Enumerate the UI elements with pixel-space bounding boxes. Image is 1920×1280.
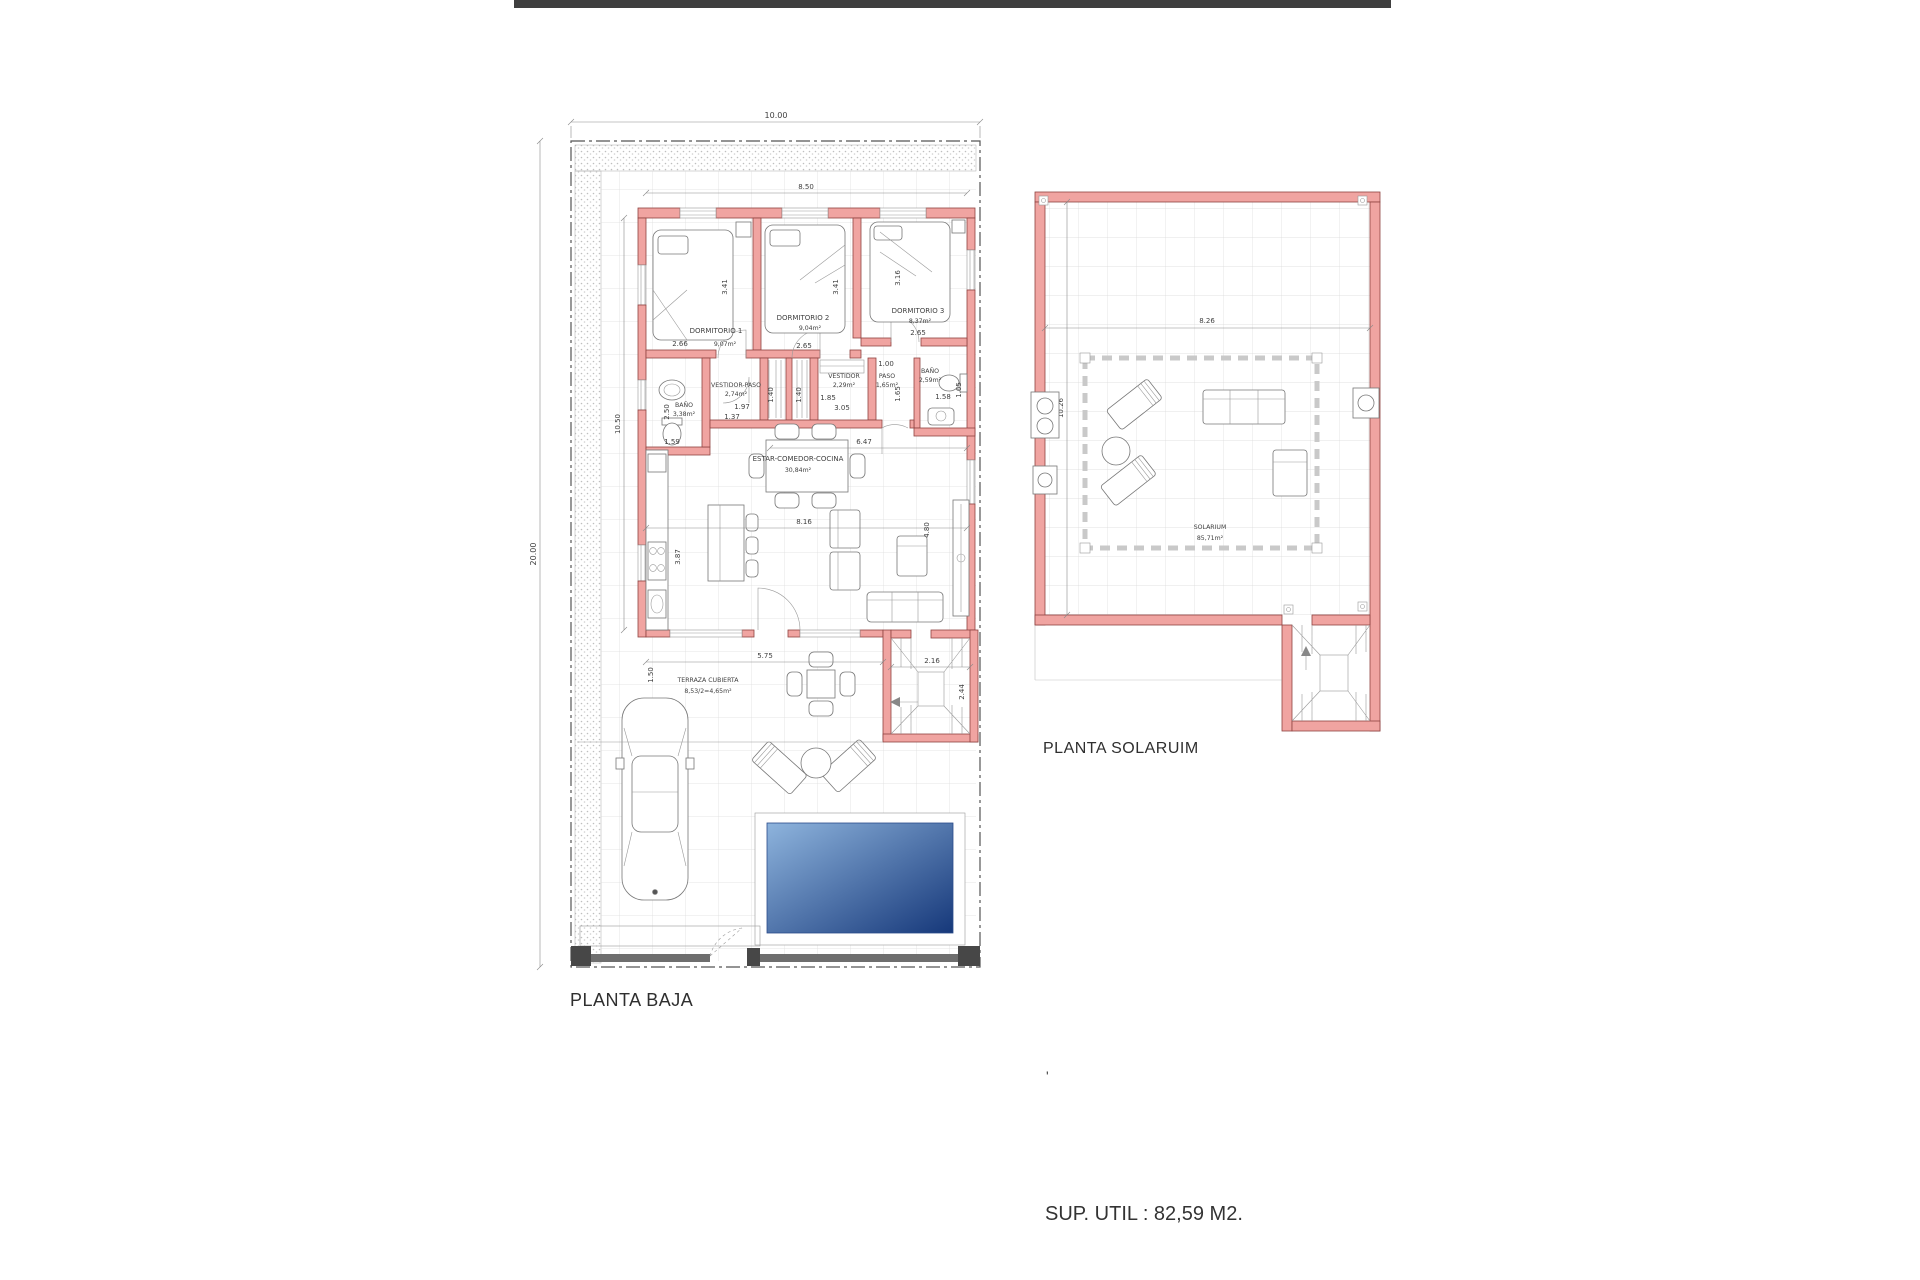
living-w-mid: 8.16 xyxy=(796,518,812,526)
stairs xyxy=(1292,625,1370,721)
dorm2-name: DORMITORIO 2 xyxy=(777,314,830,322)
bano1-w: 1.59 xyxy=(664,438,680,446)
paso-name: PASO xyxy=(879,373,895,380)
bano2-area: 2,59m² xyxy=(919,377,942,384)
living-area: 30,84m² xyxy=(785,467,812,474)
dorm2-width: 2.65 xyxy=(796,342,812,350)
terraza-h: 1.50 xyxy=(647,667,655,683)
dorm3-height: 3.16 xyxy=(894,270,902,286)
paso-w: 1.00 xyxy=(878,360,894,368)
drawing-sheet: 10.00 20.00 8.50 10.50 xyxy=(0,0,1920,1280)
note-mark: ' xyxy=(1046,1068,1049,1084)
vestidor-paso-w2: 1.37 xyxy=(724,413,740,421)
armchair-icon xyxy=(830,552,860,590)
kitchen-counter xyxy=(646,450,668,630)
car-icon xyxy=(616,698,694,900)
dorm2-area: 9,04m² xyxy=(799,325,822,332)
garden-table-icon xyxy=(1102,437,1130,465)
vestidor-name: VESTIDOR xyxy=(828,373,860,380)
vestidor-paso-area: 2,74m² xyxy=(725,391,748,398)
living-name: ESTAR-COMEDOR-COCINA xyxy=(753,455,844,463)
closet-left-dim: 1.40 xyxy=(767,387,775,403)
plot-height-dim: 20.00 xyxy=(529,543,538,566)
plot-width-dim: 10.00 xyxy=(765,111,788,120)
vestidor-area: 2,29m² xyxy=(833,382,856,389)
planta-baja-title: PLANTA BAJA xyxy=(570,990,693,1011)
armchair-icon xyxy=(897,536,927,576)
planta-solarium-drawing: 8.26 10.26 SOLARIUM 85,71m² xyxy=(1020,150,1420,770)
armchair-icon xyxy=(1273,450,1307,496)
planter-icon xyxy=(1033,466,1057,494)
dorm1-width: 2.66 xyxy=(672,340,688,348)
tv-unit-icon xyxy=(953,500,969,616)
living-h-right: 4.80 xyxy=(923,522,931,538)
top-bar xyxy=(514,0,1391,8)
stairs-h: 2.44 xyxy=(958,684,966,700)
solarium-name: SOLARIUM xyxy=(1194,524,1227,531)
gravel-band-top xyxy=(575,145,976,171)
bano2-name: BAÑO xyxy=(921,366,939,375)
gravel-band-left xyxy=(575,171,601,963)
living-h-left: 3.87 xyxy=(674,549,682,565)
bano1-h: 2.50 xyxy=(663,404,671,420)
vestidor-paso-w: 1.97 xyxy=(734,403,750,411)
house-width-dim: 8.50 xyxy=(798,183,814,191)
bano2-w: 1.58 xyxy=(935,393,951,401)
surface-summary: SUP. UTIL : 82,59 M2. SUP. CONSTRUIDA: 9… xyxy=(1045,1122,1387,1280)
planter-icon xyxy=(1353,388,1379,418)
vestidor-w: 1.85 xyxy=(820,394,836,402)
bano1-name: BAÑO xyxy=(675,400,693,409)
closet-right-dim: 1.40 xyxy=(795,387,803,403)
dorm2-height: 3.41 xyxy=(832,279,840,295)
sink-icon xyxy=(659,380,685,400)
dorm1-name: DORMITORIO 1 xyxy=(690,327,743,335)
dorm3-name: DORMITORIO 3 xyxy=(892,307,945,315)
planter-icon xyxy=(1031,392,1059,438)
solarium-area: 85,71m² xyxy=(1197,535,1224,542)
dorm3-width: 2.65 xyxy=(910,329,926,337)
dorm1-area: 9,07m² xyxy=(714,341,737,348)
bano2-h: 1.65 xyxy=(955,382,963,398)
vestidor-paso-name: VESTIDOR-PASO xyxy=(711,382,761,389)
pool xyxy=(755,813,965,945)
living-w-top: 6.47 xyxy=(856,438,872,446)
house-left-height-dim: 10.50 xyxy=(614,414,622,434)
planta-baja-drawing: 10.00 20.00 8.50 10.50 xyxy=(520,90,1000,1020)
terraza-area: 8,53/2=4,65m² xyxy=(684,688,732,695)
paso-h: 1.65 xyxy=(894,386,902,402)
dorm3-area: 8,37m² xyxy=(909,318,932,325)
sink-icon xyxy=(928,408,954,425)
sofa-icon xyxy=(867,592,943,622)
kitchen-island xyxy=(708,505,758,581)
garden-table-icon xyxy=(801,748,831,778)
sofa-icon xyxy=(1203,390,1285,424)
terraza-name: TERRAZA CUBIERTA xyxy=(677,677,740,684)
dorm1-height: 3.41 xyxy=(721,279,729,295)
vestidor-w2: 3.05 xyxy=(834,404,850,412)
stairs-w: 2.16 xyxy=(924,657,940,665)
solarium-width-dim: 8.26 xyxy=(1199,317,1215,325)
roof-edge-line xyxy=(1035,625,1282,680)
bano1-area: 3,38m² xyxy=(673,411,696,418)
planta-solarium-title: PLANTA SOLARUIM xyxy=(1043,740,1199,758)
terraza-w: 5.75 xyxy=(757,652,773,660)
armchair-icon xyxy=(830,510,860,548)
wardrobe-icon xyxy=(820,360,864,373)
sup-util-line: SUP. UTIL : 82,59 M2. xyxy=(1045,1196,1387,1233)
